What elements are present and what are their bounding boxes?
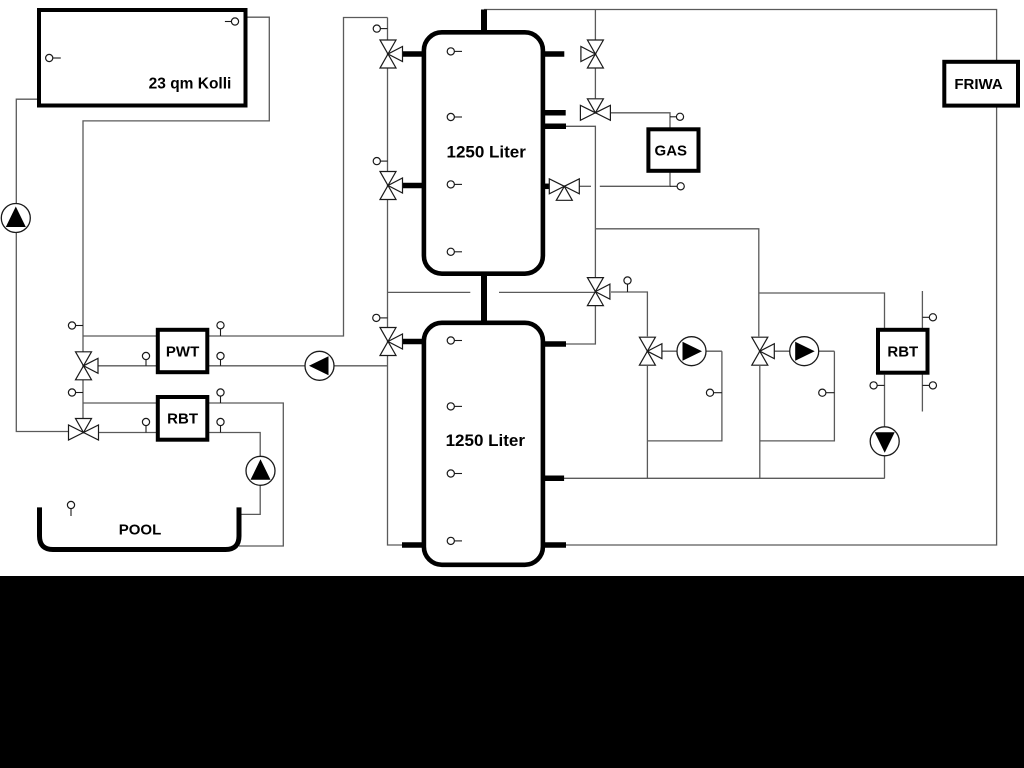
svg-text:POOL: POOL	[119, 522, 162, 539]
svg-text:FRIWA: FRIWA	[954, 76, 1002, 93]
svg-text:RBT: RBT	[167, 411, 198, 428]
svg-text:RBT: RBT	[887, 344, 918, 361]
svg-text:PWT: PWT	[166, 344, 199, 361]
svg-text:GAS: GAS	[655, 143, 688, 160]
svg-text:1250 Liter: 1250 Liter	[447, 143, 527, 162]
svg-text:1250 Liter: 1250 Liter	[446, 431, 526, 450]
svg-text:23 qm Kolli: 23 qm Kolli	[149, 76, 232, 93]
